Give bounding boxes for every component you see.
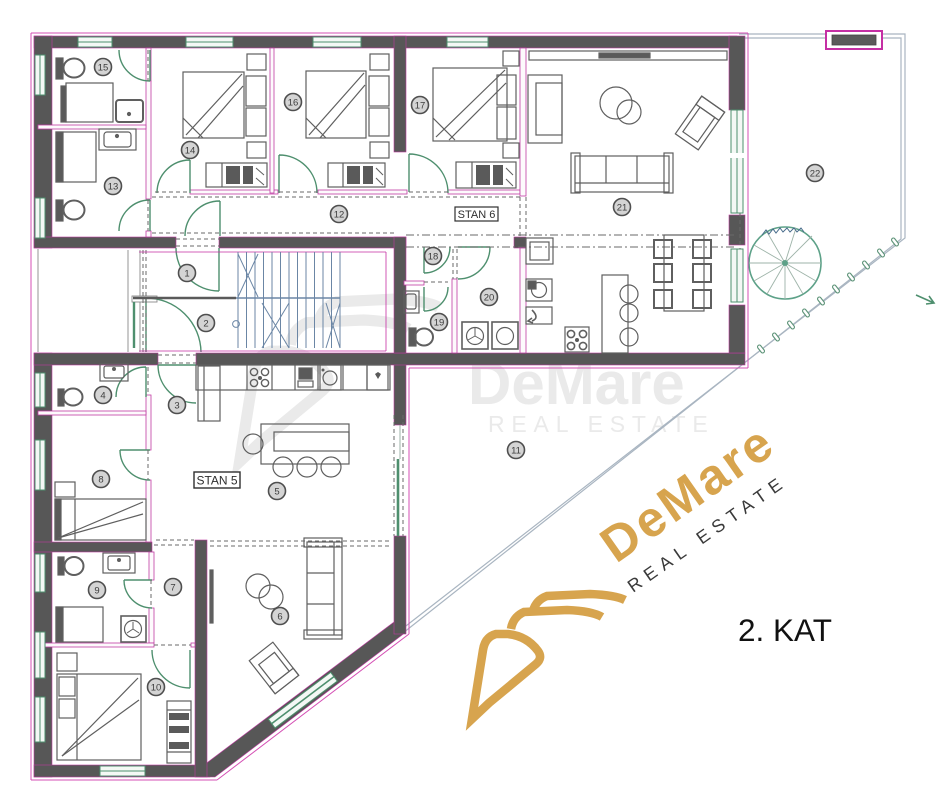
svg-text:14: 14 <box>185 146 196 157</box>
svg-text:12: 12 <box>334 210 345 221</box>
svg-text:15: 15 <box>98 63 109 74</box>
svg-text:REAL ESTATE: REAL ESTATE <box>488 411 714 437</box>
svg-text:3: 3 <box>174 401 179 412</box>
svg-text:17: 17 <box>415 101 426 112</box>
svg-text:9: 9 <box>94 586 99 597</box>
svg-text:6: 6 <box>277 612 282 623</box>
svg-text:7: 7 <box>170 583 175 594</box>
svg-text:5: 5 <box>274 487 279 498</box>
svg-text:22: 22 <box>810 169 821 180</box>
svg-text:4: 4 <box>100 391 105 402</box>
svg-text:STAN 5: STAN 5 <box>196 474 237 488</box>
svg-text:2: 2 <box>203 319 208 330</box>
svg-text:21: 21 <box>617 203 628 214</box>
svg-text:20: 20 <box>484 293 495 304</box>
svg-text:18: 18 <box>428 252 439 263</box>
svg-text:16: 16 <box>288 98 299 109</box>
svg-text:10: 10 <box>151 683 162 694</box>
svg-text:13: 13 <box>108 182 119 193</box>
svg-text:11: 11 <box>511 446 521 457</box>
svg-text:1: 1 <box>184 269 189 280</box>
svg-text:STAN 6: STAN 6 <box>458 209 496 221</box>
svg-text:8: 8 <box>98 475 103 486</box>
svg-text:19: 19 <box>434 318 445 329</box>
svg-text:2. KAT: 2. KAT <box>738 612 832 648</box>
